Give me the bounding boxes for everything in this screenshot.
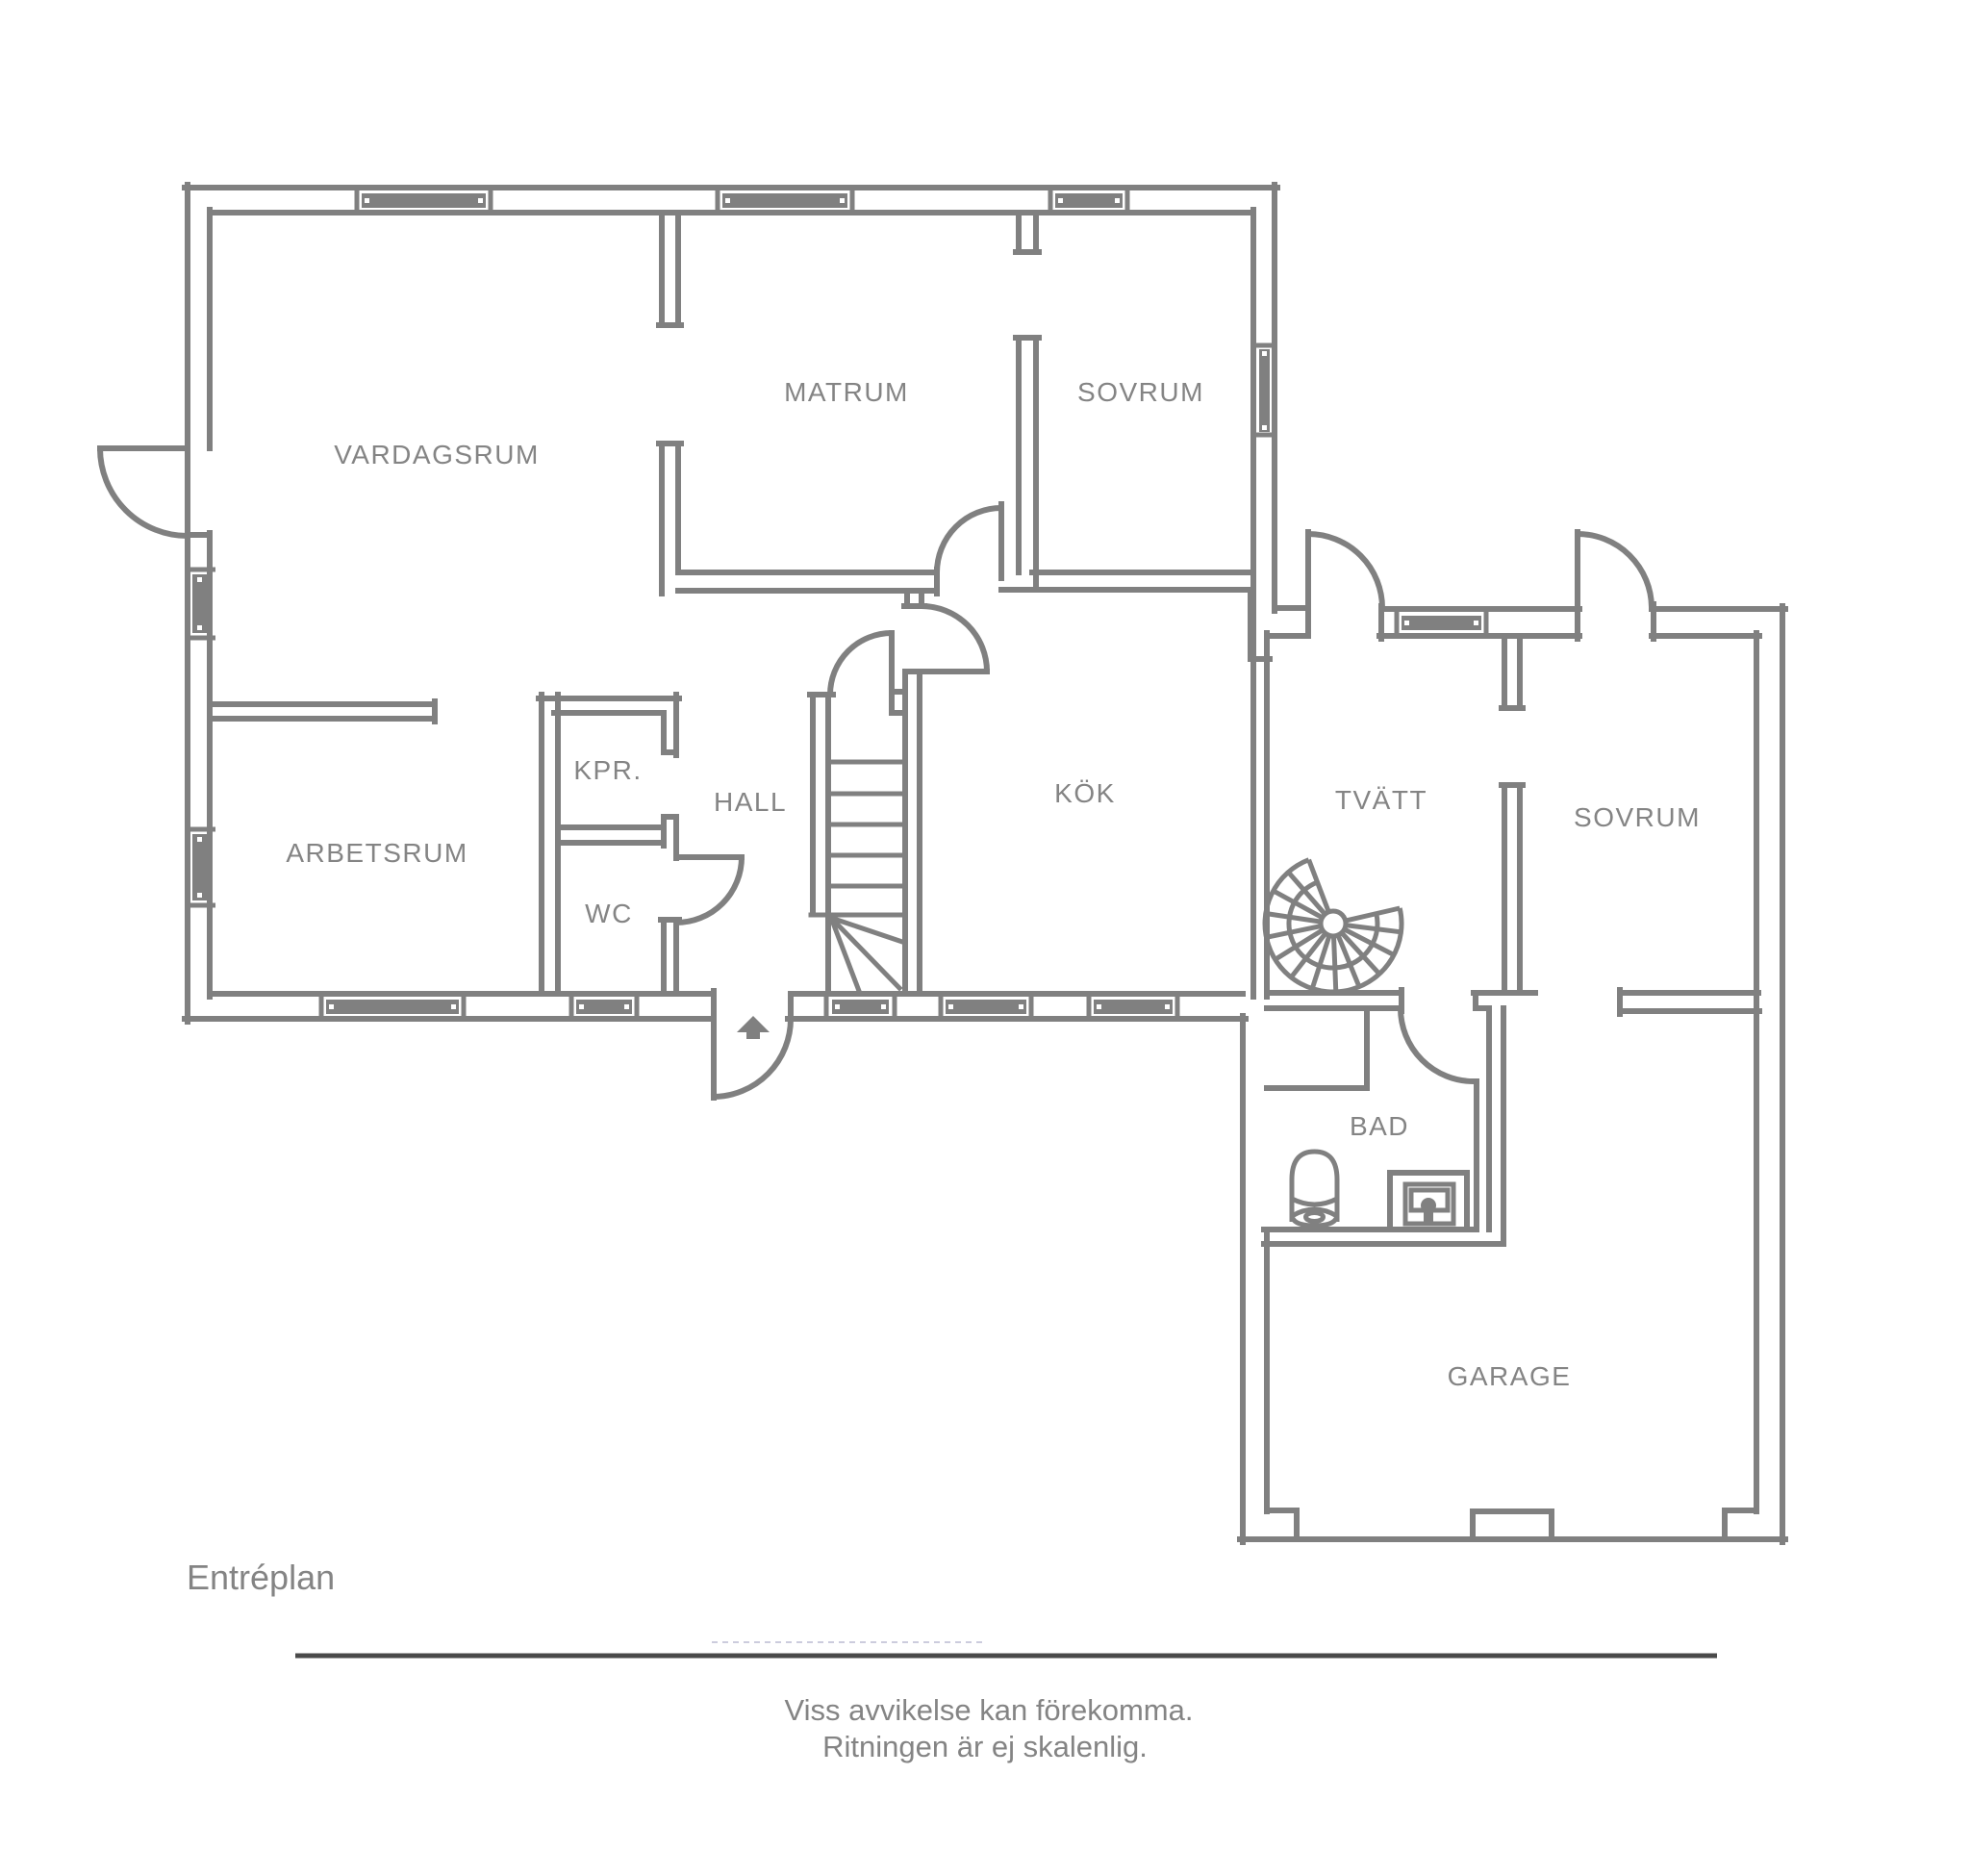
svg-text:SOVRUM: SOVRUM [1077,377,1204,407]
svg-text:GARAGE: GARAGE [1448,1361,1572,1391]
svg-text:WC: WC [585,899,633,928]
svg-text:TVÄTT: TVÄTT [1335,785,1427,815]
svg-text:BAD: BAD [1350,1111,1409,1141]
svg-text:Ritningen är ej skalenlig.: Ritningen är ej skalenlig. [822,1730,1148,1763]
svg-text:ARBETSRUM: ARBETSRUM [286,838,467,868]
svg-text:MATRUM: MATRUM [784,377,909,407]
svg-text:KPR.: KPR. [573,755,642,785]
svg-text:Viss avvikelse kan förekomma.: Viss avvikelse kan förekomma. [785,1693,1194,1727]
svg-text:KÖK: KÖK [1054,778,1116,808]
svg-text:SOVRUM: SOVRUM [1574,802,1701,832]
svg-text:HALL: HALL [714,787,787,817]
svg-text:VARDAGSRUM: VARDAGSRUM [334,440,540,469]
svg-text:Entréplan: Entréplan [187,1558,335,1597]
